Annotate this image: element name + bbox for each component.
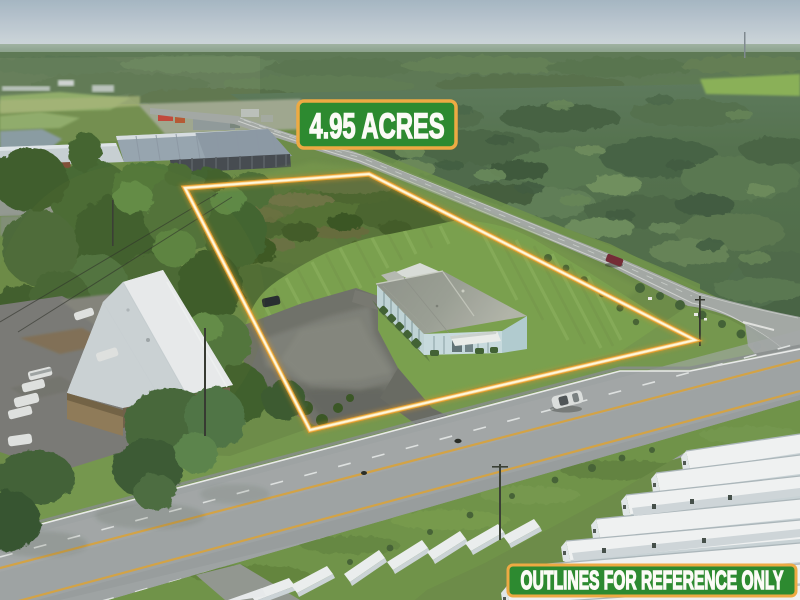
svg-text:4.95 ACRES: 4.95 ACRES: [309, 108, 444, 147]
svg-text:OUTLINES FOR REFERENCE ONLY: OUTLINES FOR REFERENCE ONLY: [521, 566, 784, 595]
